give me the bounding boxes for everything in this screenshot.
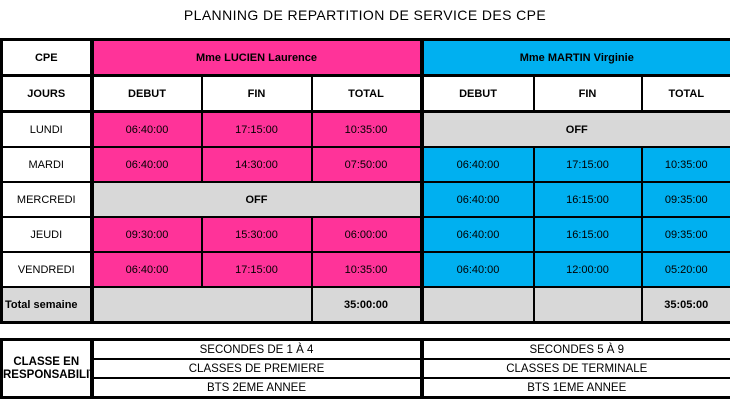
cpe-header-row: CPE Mme LUCIEN Laurence Mme MARTIN Virgi…	[2, 40, 730, 76]
page-title: PLANNING DE REPARTITION DE SERVICE DES C…	[0, 0, 730, 38]
class-cell-lucien: BTS 2EME ANNEE	[92, 378, 422, 398]
time-cell: 09:35:00	[642, 182, 730, 217]
row-mercredi: MERCREDI OFF 06:40:00 16:15:00 09:35:00	[2, 182, 730, 217]
day-cell: VENDREDI	[2, 252, 92, 287]
time-cell: 06:40:00	[92, 112, 202, 148]
row-mardi: MARDI 06:40:00 14:30:00 07:50:00 06:40:0…	[2, 147, 730, 182]
empty-cell	[422, 287, 534, 323]
day-cell: LUNDI	[2, 112, 92, 148]
planning-table: CPE Mme LUCIEN Laurence Mme MARTIN Virgi…	[0, 38, 730, 324]
classes-row-2: CLASSES DE PREMIERE CLASSES DE TERMINALE	[2, 359, 730, 378]
time-cell: 16:15:00	[534, 217, 642, 252]
empty-cell	[534, 287, 642, 323]
time-cell: 12:00:00	[534, 252, 642, 287]
class-cell-lucien: SECONDES DE 1 À 4	[92, 340, 422, 360]
time-cell: 17:15:00	[202, 112, 312, 148]
subheader-row: JOURS DEBUT FIN TOTAL DEBUT FIN TOTAL	[2, 76, 730, 112]
class-cell-lucien: CLASSES DE PREMIERE	[92, 359, 422, 378]
fin-header-lucien: FIN	[202, 76, 312, 112]
day-cell: JEUDI	[2, 217, 92, 252]
time-cell: 06:40:00	[422, 147, 534, 182]
classes-responsibility-label: CLASSE EN RESPONSABILITE	[2, 340, 92, 398]
time-cell: 10:35:00	[642, 147, 730, 182]
fin-header-martin: FIN	[534, 76, 642, 112]
empty-cell	[92, 287, 312, 323]
time-cell: 05:20:00	[642, 252, 730, 287]
total-week-lucien: 35:00:00	[312, 287, 422, 323]
day-cell: MERCREDI	[2, 182, 92, 217]
class-cell-martin: CLASSES DE TERMINALE	[422, 359, 730, 378]
cpe-name-martin: Mme MARTIN Virginie	[422, 40, 730, 76]
row-vendredi: VENDREDI 06:40:00 17:15:00 10:35:00 06:4…	[2, 252, 730, 287]
off-cell: OFF	[422, 112, 730, 148]
total-header-martin: TOTAL	[642, 76, 730, 112]
time-cell: 09:30:00	[92, 217, 202, 252]
time-cell: 06:40:00	[422, 252, 534, 287]
class-cell-martin: SECONDES 5 À 9	[422, 340, 730, 360]
classes-row-3: BTS 2EME ANNEE BTS 1EME ANNEE	[2, 378, 730, 398]
debut-header-martin: DEBUT	[422, 76, 534, 112]
time-cell: 09:35:00	[642, 217, 730, 252]
total-week-label: Total semaine	[2, 287, 92, 323]
time-cell: 06:40:00	[422, 182, 534, 217]
time-cell: 06:00:00	[312, 217, 422, 252]
time-cell: 17:15:00	[534, 147, 642, 182]
classes-row-1: CLASSE EN RESPONSABILITE SECONDES DE 1 À…	[2, 340, 730, 360]
time-cell: 06:40:00	[92, 147, 202, 182]
time-cell: 06:40:00	[92, 252, 202, 287]
classes-label-line2: RESPONSABILITE	[3, 369, 90, 382]
total-week-martin: 35:05:00	[642, 287, 730, 323]
classes-label-line1: CLASSE EN	[3, 356, 90, 369]
time-cell: 06:40:00	[422, 217, 534, 252]
time-cell: 16:15:00	[534, 182, 642, 217]
off-cell: OFF	[92, 182, 422, 217]
jours-header-cell: JOURS	[2, 76, 92, 112]
time-cell: 10:35:00	[312, 252, 422, 287]
time-cell: 07:50:00	[312, 147, 422, 182]
classes-table: CLASSE EN RESPONSABILITE SECONDES DE 1 À…	[0, 338, 730, 399]
class-cell-martin: BTS 1EME ANNEE	[422, 378, 730, 398]
row-lundi: LUNDI 06:40:00 17:15:00 10:35:00 OFF	[2, 112, 730, 148]
time-cell: 10:35:00	[312, 112, 422, 148]
cpe-name-lucien: Mme LUCIEN Laurence	[92, 40, 422, 76]
day-cell: MARDI	[2, 147, 92, 182]
total-header-lucien: TOTAL	[312, 76, 422, 112]
time-cell: 17:15:00	[202, 252, 312, 287]
debut-header-lucien: DEBUT	[92, 76, 202, 112]
time-cell: 15:30:00	[202, 217, 312, 252]
cpe-corner-cell: CPE	[2, 40, 92, 76]
time-cell: 14:30:00	[202, 147, 312, 182]
row-jeudi: JEUDI 09:30:00 15:30:00 06:00:00 06:40:0…	[2, 217, 730, 252]
total-row: Total semaine 35:00:00 35:05:00	[2, 287, 730, 323]
